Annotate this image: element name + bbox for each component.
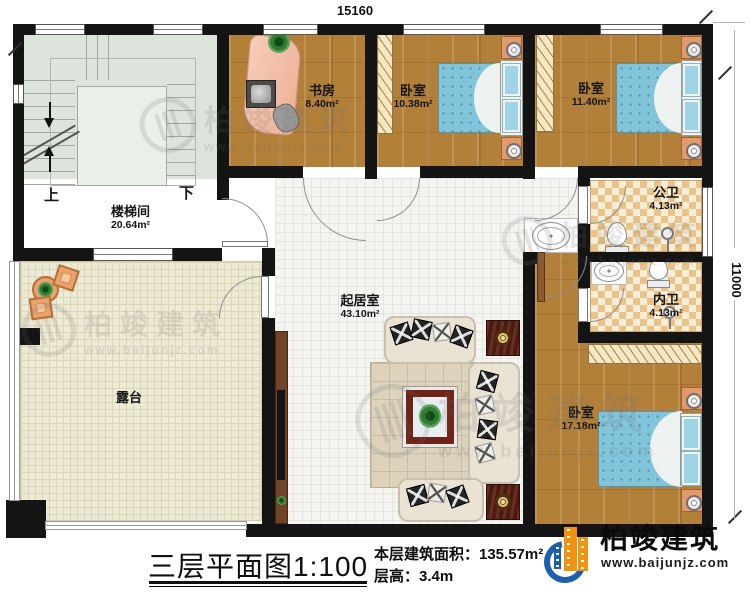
dimension-width: 15160: [315, 3, 395, 18]
toilet-tank: [647, 280, 670, 288]
bed-pillow: [682, 417, 700, 450]
sofa-pillow: [410, 318, 433, 341]
room-name: 卧室: [383, 84, 443, 99]
window: [93, 248, 173, 261]
wall: [578, 252, 713, 262]
wall: [420, 166, 523, 178]
nightstand: [681, 387, 703, 410]
room-label: 书房 8.40m²: [292, 84, 352, 110]
wall: [262, 318, 275, 524]
stair-up-label: 上: [44, 184, 59, 205]
nightstand: [501, 36, 522, 59]
door-swing-arc: [222, 198, 268, 244]
room-name: 公卫: [636, 186, 696, 201]
brand-name: 柏竣建筑: [600, 517, 720, 557]
plan-title: 三层平面图1:100: [148, 545, 368, 585]
wall: [578, 166, 713, 178]
bed-pillow: [682, 452, 700, 485]
room-area: 8.40m²: [292, 99, 352, 111]
window: [403, 24, 485, 35]
room-name: 起居室: [329, 294, 391, 309]
stair-landing: [77, 86, 167, 186]
sofa-pillow: [474, 394, 495, 415]
wall: [217, 166, 303, 178]
stair-direction-line: [49, 156, 51, 172]
dimension-line: [734, 300, 735, 520]
bed-pillow: [503, 64, 520, 96]
room-label: 楼梯间 20.64m²: [93, 205, 168, 231]
room-name: 楼梯间: [93, 205, 168, 220]
window: [702, 187, 713, 257]
terrace-railing: [45, 521, 247, 530]
wall: [365, 24, 377, 179]
nightstand: [681, 137, 702, 160]
sofa-pillow: [427, 483, 448, 504]
wardrobe: [536, 34, 554, 132]
logo-building-icon: [554, 545, 561, 569]
room-label: 卧室 10.38m²: [383, 84, 443, 110]
tick-mark: [699, 10, 713, 24]
room-area: 11.40m²: [561, 97, 621, 109]
sink-icon: [594, 260, 624, 282]
door-leaf: [261, 276, 269, 318]
wall: [13, 24, 24, 252]
floor-plan-canvas: 书房 8.40m² 卧室 10.38m² 卧室 11.40m² 公卫 4.13m…: [0, 0, 750, 594]
brand-url: www.baijunjz.com: [601, 555, 729, 570]
plant-icon: [38, 282, 53, 297]
wall: [523, 24, 535, 179]
terrace-chair: [29, 296, 54, 321]
plant-icon: [277, 496, 286, 505]
floor-area-label: 本层建筑面积：135.57m²: [374, 543, 543, 564]
stair-down-label: 下: [179, 182, 194, 203]
brand-logo: 柏竣建筑 www.baijunjz.com: [544, 521, 716, 589]
door-leaf: [578, 288, 588, 322]
plant-icon: [419, 404, 441, 428]
nightstand: [501, 137, 522, 160]
room-area: 20.64m²: [93, 220, 168, 232]
toilet-icon: [607, 222, 627, 246]
end-table: [486, 484, 520, 520]
down-arrow-icon: [44, 118, 54, 128]
up-arrow-icon: [44, 146, 54, 156]
stair-direction-line: [49, 102, 51, 118]
room-area: 4.13m²: [636, 201, 696, 213]
shower-stem: [669, 319, 671, 329]
room-label: 内卫 4.13m²: [636, 293, 696, 319]
wall: [523, 252, 535, 524]
bed-pillow: [503, 100, 520, 132]
tick-mark: [728, 510, 742, 524]
room-name: 书房: [292, 84, 352, 99]
window: [153, 24, 203, 35]
room-name: 内卫: [636, 293, 696, 308]
tick-mark: [718, 66, 732, 80]
bed-pillow: [683, 100, 700, 132]
room-area: 4.13m²: [636, 308, 696, 320]
dimension-line: [734, 30, 735, 248]
logo-building-icon: [578, 537, 588, 571]
room-label: 起居室 43.10m²: [329, 294, 391, 320]
shower-icon: [661, 227, 674, 240]
wall: [578, 224, 590, 252]
sink-icon: [532, 222, 570, 250]
window: [13, 84, 24, 104]
room-area: 43.10m²: [329, 309, 391, 321]
logo-building-icon: [564, 527, 577, 571]
window: [35, 24, 85, 35]
room-name: 露台: [104, 391, 154, 406]
dimension-height: 11000: [728, 250, 744, 310]
door-leaf: [537, 252, 545, 302]
wall: [578, 178, 590, 186]
title-underline: [149, 581, 367, 584]
wall-pillar: [6, 500, 46, 538]
room-name: 卧室: [561, 82, 621, 97]
room-label: 公卫 4.13m²: [636, 186, 696, 212]
wall: [262, 248, 275, 276]
nightstand: [681, 36, 702, 59]
wall: [702, 24, 713, 537]
shower-stem: [667, 240, 669, 252]
window: [600, 24, 663, 35]
end-table: [486, 320, 520, 356]
room-label: 露台: [104, 391, 154, 406]
plan-title-text: 三层平面图: [148, 551, 293, 582]
tv: [277, 390, 285, 480]
door-leaf: [222, 241, 268, 247]
room-area: 10.38m²: [383, 99, 443, 111]
title-underline: [149, 586, 367, 587]
window: [263, 24, 318, 35]
dimension-line: [713, 22, 745, 23]
room-label: 卧室 17.18m²: [551, 406, 611, 432]
bed-pillow: [683, 64, 700, 96]
computer-monitor: [246, 80, 276, 108]
sofa-pillow: [477, 419, 498, 440]
wall: [578, 332, 713, 343]
room-label: 卧室 11.40m²: [561, 82, 621, 108]
terrace-railing: [9, 261, 20, 501]
nightstand: [681, 489, 703, 512]
room-area: 17.18m²: [551, 421, 611, 433]
plan-scale: 1:100: [293, 551, 368, 582]
wardrobe: [588, 344, 702, 364]
door-leaf: [578, 186, 588, 224]
floor-height-label: 层高：3.4m: [374, 565, 453, 586]
room-name: 卧室: [551, 406, 611, 421]
